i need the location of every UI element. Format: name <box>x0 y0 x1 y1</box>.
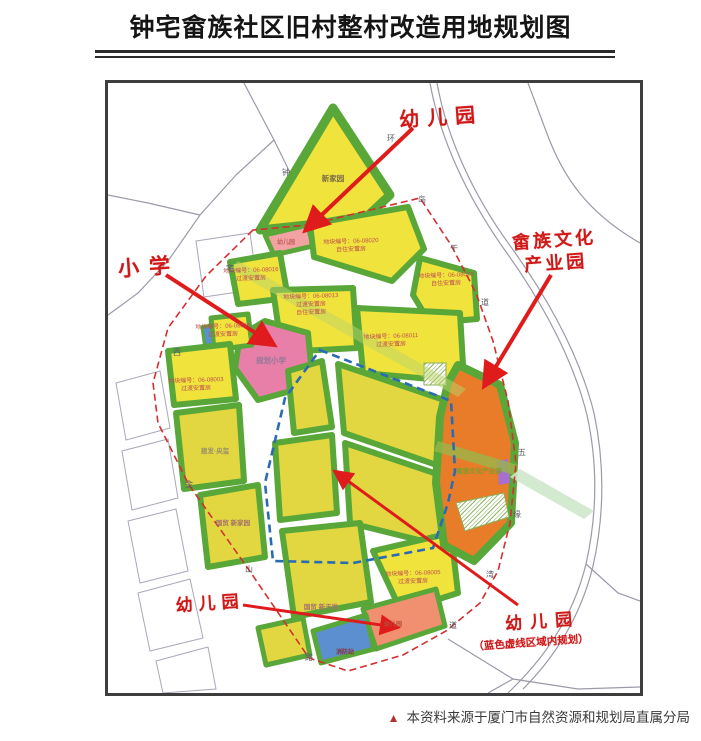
planning-map: 幼儿园 小学 畲族文化 产业园 幼儿园 幼儿园 （蓝色虚线区域内规划） 地块编号… <box>105 80 643 696</box>
road-char-wuyuanwan-1: 五 <box>516 447 528 458</box>
name-kindergarten-top: 幼儿园 <box>263 237 309 246</box>
caption-text: 本资料来源于厦门市自然资源和规划局直属分局 <box>407 710 691 725</box>
name-guomao-xinjiayuan: 国贸 新家园 <box>196 517 270 527</box>
parcel-label-06-08023: 地块编号：06-08023自住安置房 <box>403 271 490 290</box>
road-char-huandao-4: 道 <box>479 297 491 308</box>
arrow-culture-park <box>486 275 551 383</box>
parcel-label-06-08016: 地块编号：06-08016过渡安置房 <box>208 266 295 285</box>
road-char-jinshan-1: 金 <box>183 479 195 490</box>
road-char-zhongzhai-1: 钟 <box>280 167 292 178</box>
parcel-central-1[interactable] <box>288 361 332 433</box>
name-fire-station: 消防站 <box>320 647 370 656</box>
road-char-wuyuanwan-2: 缘 <box>511 509 523 520</box>
name-culture-park: 畲族文化产业园 <box>438 465 520 475</box>
parcel-label-06-08020: 地块编号：06-08020自住安置房 <box>308 237 395 256</box>
road-char-wuyuanwan-4: 道 <box>447 620 459 631</box>
road-char-huandao-2: 岛 <box>416 194 428 205</box>
label-culture-park-line2: 产业园 <box>524 251 588 275</box>
label-culture-park: 畲族文化 产业园 <box>489 225 622 280</box>
page-title: 钟宅畲族社区旧村整村改造用地规划图 <box>0 8 701 44</box>
source-caption: ▲本资料来源于厦门市自然资源和规划局直属分局 <box>0 706 690 726</box>
parcel-label-06-08011: 地块编号：06-08011过渡安置房 <box>348 332 435 351</box>
road-char-zhongzhai-3: 西 <box>171 347 183 358</box>
road-char-huandao-1: 环 <box>385 133 397 144</box>
road-char-wuyuanwan-3: 湾 <box>484 569 496 580</box>
name-planned-school: 规划小学 <box>236 355 306 366</box>
caption-triangle-icon: ▲ <box>388 711 400 725</box>
road-char-jinshan-2: 山 <box>243 564 255 575</box>
title-divider <box>95 50 615 58</box>
name-guomao-xintiandi: 国贸 新天地 <box>284 601 358 611</box>
parcel-central-3[interactable] <box>275 435 337 520</box>
parcel-label-06-08005: 地块编号：06-08005过渡安置房 <box>370 569 457 588</box>
label-culture-park-line1: 畲族文化 <box>512 227 597 253</box>
road-char-zhongzhai-2: 宅 <box>224 263 236 274</box>
parcel-label-06-08015: 地块编号：06-08015过渡安置房 <box>180 322 267 341</box>
road-char-huandao-3: 干 <box>448 243 460 254</box>
label-primary-school: 小学 <box>107 248 191 284</box>
name-kindergarten-bottom: 幼儿园 <box>370 619 416 628</box>
name-xinjiayuan: 新家园 <box>298 173 368 184</box>
name-jianfa: 建发·央玺 <box>178 445 252 455</box>
parcel-label-06-08003: 地块编号：06-08003过渡安置房 <box>153 376 240 395</box>
road-char-jinshan-3: 路 <box>303 652 315 663</box>
parcel-label-06-08013: 地块编号：06-08013过渡安置房自住安置房 <box>268 292 355 319</box>
page: { "title": "钟宅畲族社区旧村整村改造用地规划图", "caption… <box>0 0 701 741</box>
